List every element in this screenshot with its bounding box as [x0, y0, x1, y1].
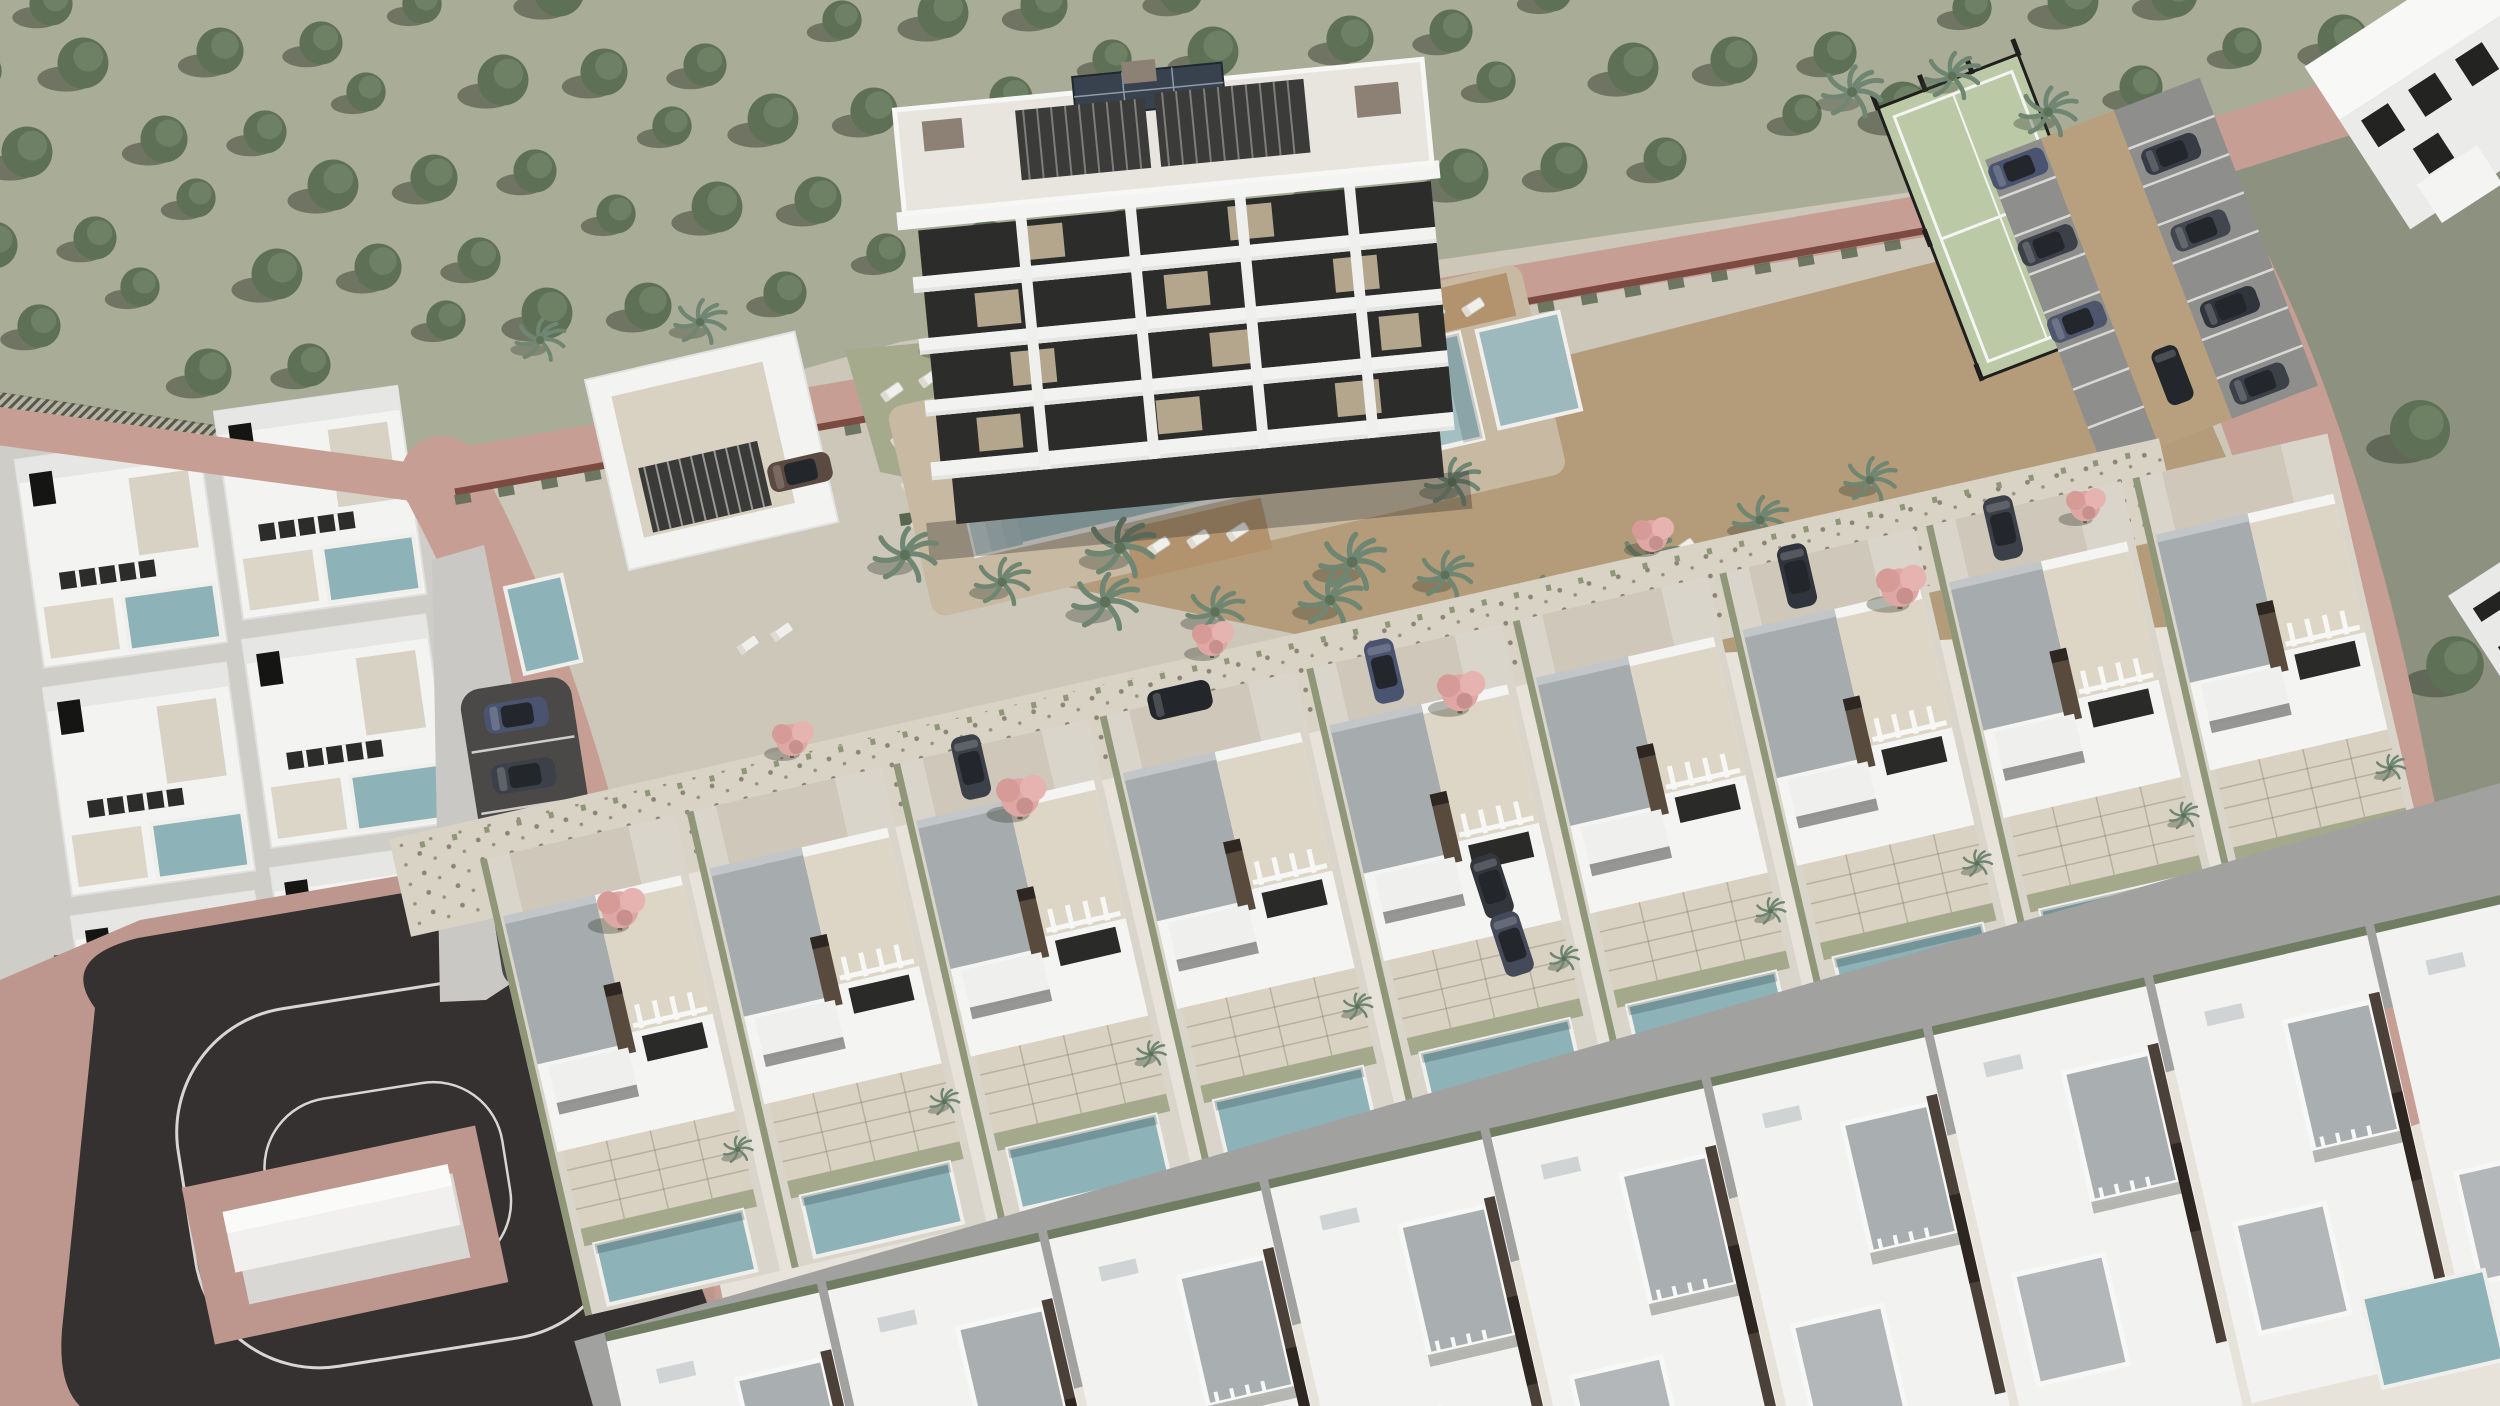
- apartment-building: [884, 33, 1472, 561]
- render-canvas: Aerial 3D architectural rendering of a r…: [0, 0, 2500, 1406]
- masterplan-render: Aerial 3D architectural rendering of a r…: [0, 0, 2500, 1406]
- roof-stair-core: [1354, 82, 1401, 118]
- left-villa: [242, 614, 454, 848]
- roof-pergola: [1015, 98, 1151, 180]
- left-villa: [43, 662, 255, 896]
- road-junction: [400, 436, 484, 520]
- roof-chimney: [1121, 59, 1157, 84]
- roof-stair-core: [922, 118, 965, 152]
- left-villa: [214, 386, 426, 620]
